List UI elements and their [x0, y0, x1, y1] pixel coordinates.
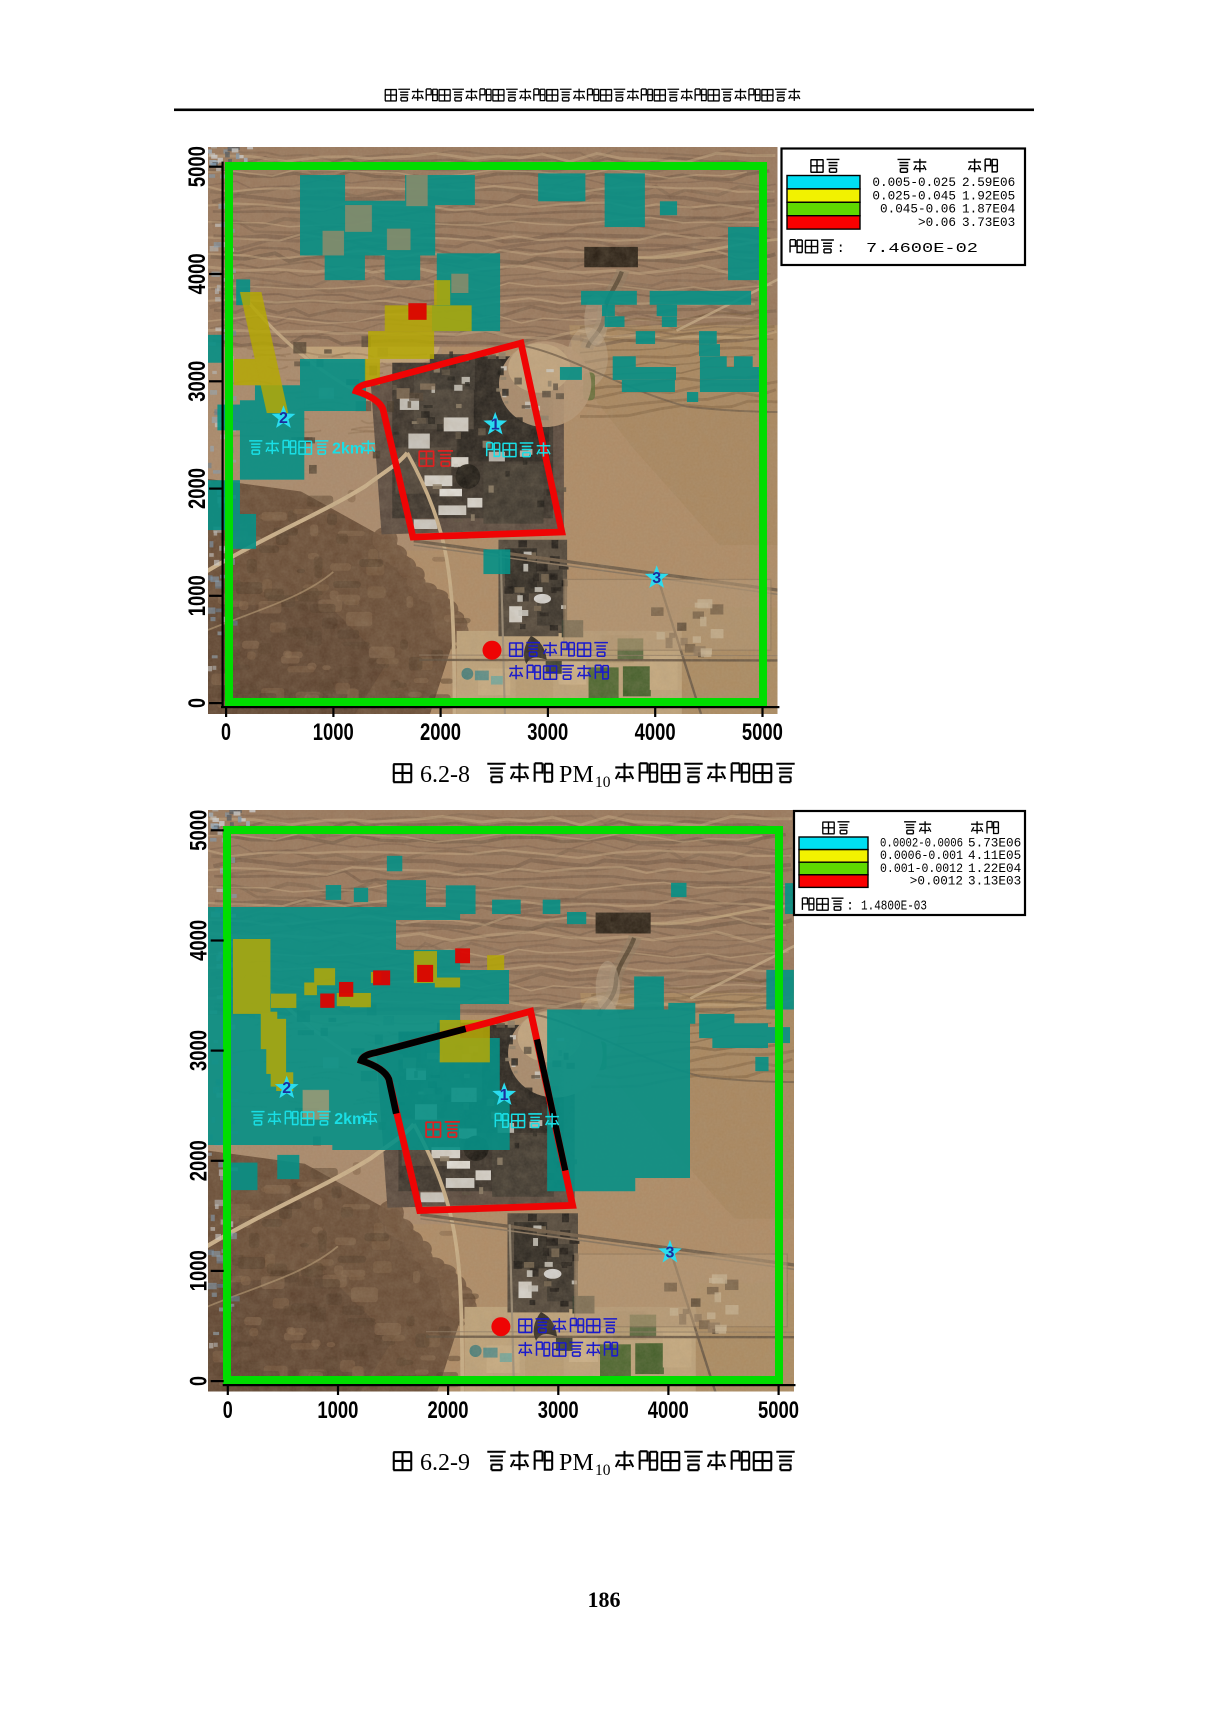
svg-text:5000: 5000 — [742, 719, 783, 746]
svg-text:4000: 4000 — [648, 1397, 689, 1424]
svg-text:2km: 2km — [332, 440, 364, 457]
svg-text:1: 1 — [491, 416, 500, 433]
svg-text:1000: 1000 — [186, 1250, 213, 1291]
svg-text:PM: PM — [559, 762, 594, 788]
svg-text:>0.0012: >0.0012 — [910, 874, 963, 888]
svg-text:7.4600E-02: 7.4600E-02 — [866, 241, 978, 257]
svg-text:1000: 1000 — [184, 575, 211, 616]
svg-text:2000: 2000 — [420, 719, 461, 746]
svg-text:5000: 5000 — [758, 1397, 799, 1424]
svg-text:3000: 3000 — [184, 361, 211, 402]
svg-text:6.2-9: 6.2-9 — [420, 1450, 470, 1476]
svg-text:3: 3 — [666, 1244, 675, 1261]
svg-text:0: 0 — [223, 1397, 233, 1424]
svg-text:2: 2 — [279, 410, 288, 427]
svg-text:4000: 4000 — [635, 719, 676, 746]
svg-text:1000: 1000 — [317, 1397, 358, 1424]
svg-text:>0.06: >0.06 — [918, 215, 956, 230]
svg-text:PM: PM — [559, 1450, 594, 1476]
svg-text:3000: 3000 — [186, 1030, 213, 1071]
svg-text:2km: 2km — [334, 1111, 366, 1128]
svg-text:0: 0 — [186, 1376, 213, 1386]
svg-text:1: 1 — [500, 1087, 509, 1104]
svg-text:0: 0 — [221, 719, 231, 746]
svg-text:186: 186 — [588, 1587, 621, 1612]
svg-text:3000: 3000 — [538, 1397, 579, 1424]
svg-text:4000: 4000 — [184, 253, 211, 294]
svg-text:2000: 2000 — [186, 1140, 213, 1181]
svg-text:1.4800E-03: 1.4800E-03 — [861, 899, 927, 914]
svg-text:10: 10 — [595, 1462, 611, 1479]
svg-text:2000: 2000 — [428, 1397, 469, 1424]
svg-text:2: 2 — [282, 1080, 291, 1097]
svg-text::: : — [846, 899, 854, 914]
svg-text:3.73E03: 3.73E03 — [962, 215, 1015, 230]
svg-text:1000: 1000 — [313, 719, 354, 746]
svg-text:5000: 5000 — [184, 146, 211, 187]
svg-text:0: 0 — [184, 698, 211, 708]
svg-text::: : — [837, 241, 845, 257]
svg-text:6.2-8: 6.2-8 — [420, 762, 470, 788]
svg-text:3.13E03: 3.13E03 — [968, 874, 1021, 888]
svg-text:5000: 5000 — [186, 810, 213, 851]
svg-text:10: 10 — [595, 774, 611, 791]
svg-text:2000: 2000 — [184, 468, 211, 509]
svg-text:3000: 3000 — [527, 719, 568, 746]
svg-text:3: 3 — [652, 570, 661, 587]
svg-text:4000: 4000 — [186, 920, 213, 961]
